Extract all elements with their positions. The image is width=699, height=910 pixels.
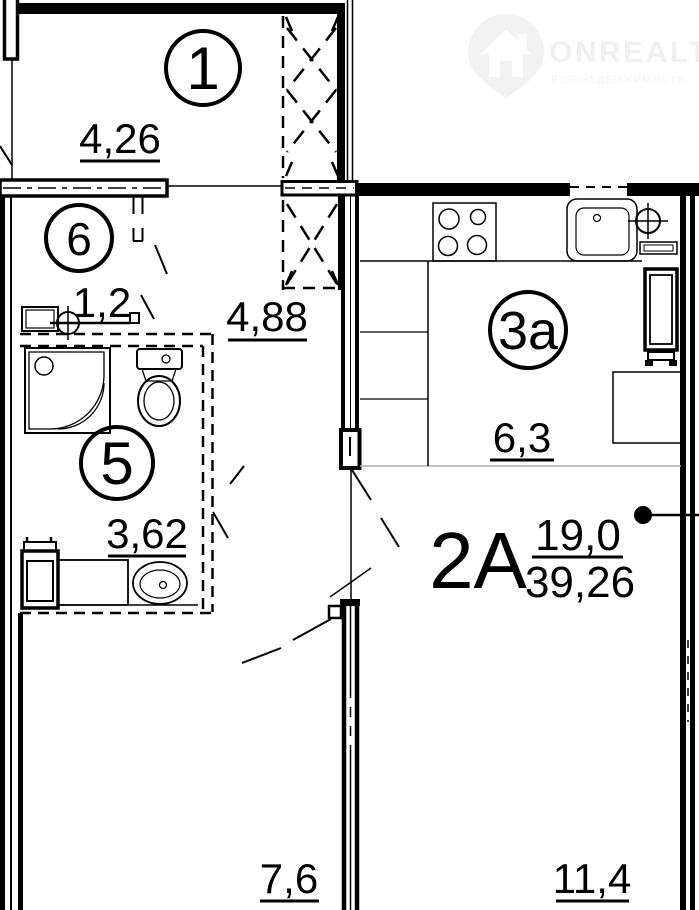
kitchen-sink-icon <box>567 199 637 261</box>
shower-icon <box>25 348 110 433</box>
watermark-logo: ONREALT ВСЯ НЕДВИЖИМОСТЬ <box>468 14 699 98</box>
room-1: 1 4,26 <box>79 31 240 162</box>
apartment-type-label: 2А <box>429 516 527 605</box>
stove-icon <box>433 203 496 261</box>
duct-stub <box>133 197 143 241</box>
room-5-area: 3,62 <box>106 510 188 557</box>
vent-shaft-upper <box>283 16 338 178</box>
room-6: 6 1,2 <box>22 205 139 340</box>
floor-plan-drawing: ONREALT ВСЯ НЕДВИЖИМОСТЬ <box>0 0 699 910</box>
vent-crosshair-icon <box>628 203 677 254</box>
house-pin-icon <box>468 14 544 98</box>
wall-right-outer <box>690 188 695 910</box>
hall: 4,88 <box>226 293 308 340</box>
hall-area: 4,88 <box>226 293 308 340</box>
room-3a-number: 3а <box>498 301 559 361</box>
wall-kitchen-left <box>341 196 360 468</box>
toilet-icon <box>137 349 182 426</box>
door-swing <box>0 146 12 165</box>
room-1-number: 1 <box>186 35 219 102</box>
lower-right-area: 11,4 <box>553 855 632 902</box>
room-3a-area: 6,3 <box>493 414 551 461</box>
vent-shaft-lower <box>283 200 341 290</box>
wall-kitchen-top <box>355 183 699 196</box>
lower-left-area: 7,6 <box>260 855 318 902</box>
washbasin-icon <box>22 307 58 331</box>
wall-bottom-middle <box>329 599 360 910</box>
kitchen-3a: 3а 6,3 <box>360 199 681 466</box>
room-6-number: 6 <box>66 213 92 265</box>
wall-top <box>17 3 345 14</box>
room-5-number: 5 <box>100 430 133 497</box>
apartment-label: 2А 19,0 39,26 <box>429 506 699 607</box>
room-6-area: 1,2 <box>73 279 131 326</box>
lower-room-left: 7,6 <box>260 855 319 902</box>
bathroom-5: 5 3,62 <box>22 348 198 608</box>
fridge-icon <box>645 269 677 366</box>
lower-room-right: 11,4 <box>553 855 632 902</box>
room-1-area: 4,26 <box>79 115 161 162</box>
wall-pier-top-left <box>5 0 18 59</box>
wall-left <box>0 196 5 910</box>
wall-right-inner <box>680 188 686 910</box>
brand-tagline: ВСЯ НЕДВИЖИМОСТЬ <box>551 74 686 86</box>
dining-table <box>613 372 681 443</box>
bathroom-sink-icon <box>133 562 187 604</box>
living-area-value: 19,0 <box>535 511 621 560</box>
floor-plan-page: ONREALT ВСЯ НЕДВИЖИМОСТЬ <box>0 0 699 910</box>
total-area-value: 39,26 <box>525 558 635 607</box>
brand-name: ONREALT <box>549 36 699 69</box>
washing-machine-icon <box>22 537 58 608</box>
